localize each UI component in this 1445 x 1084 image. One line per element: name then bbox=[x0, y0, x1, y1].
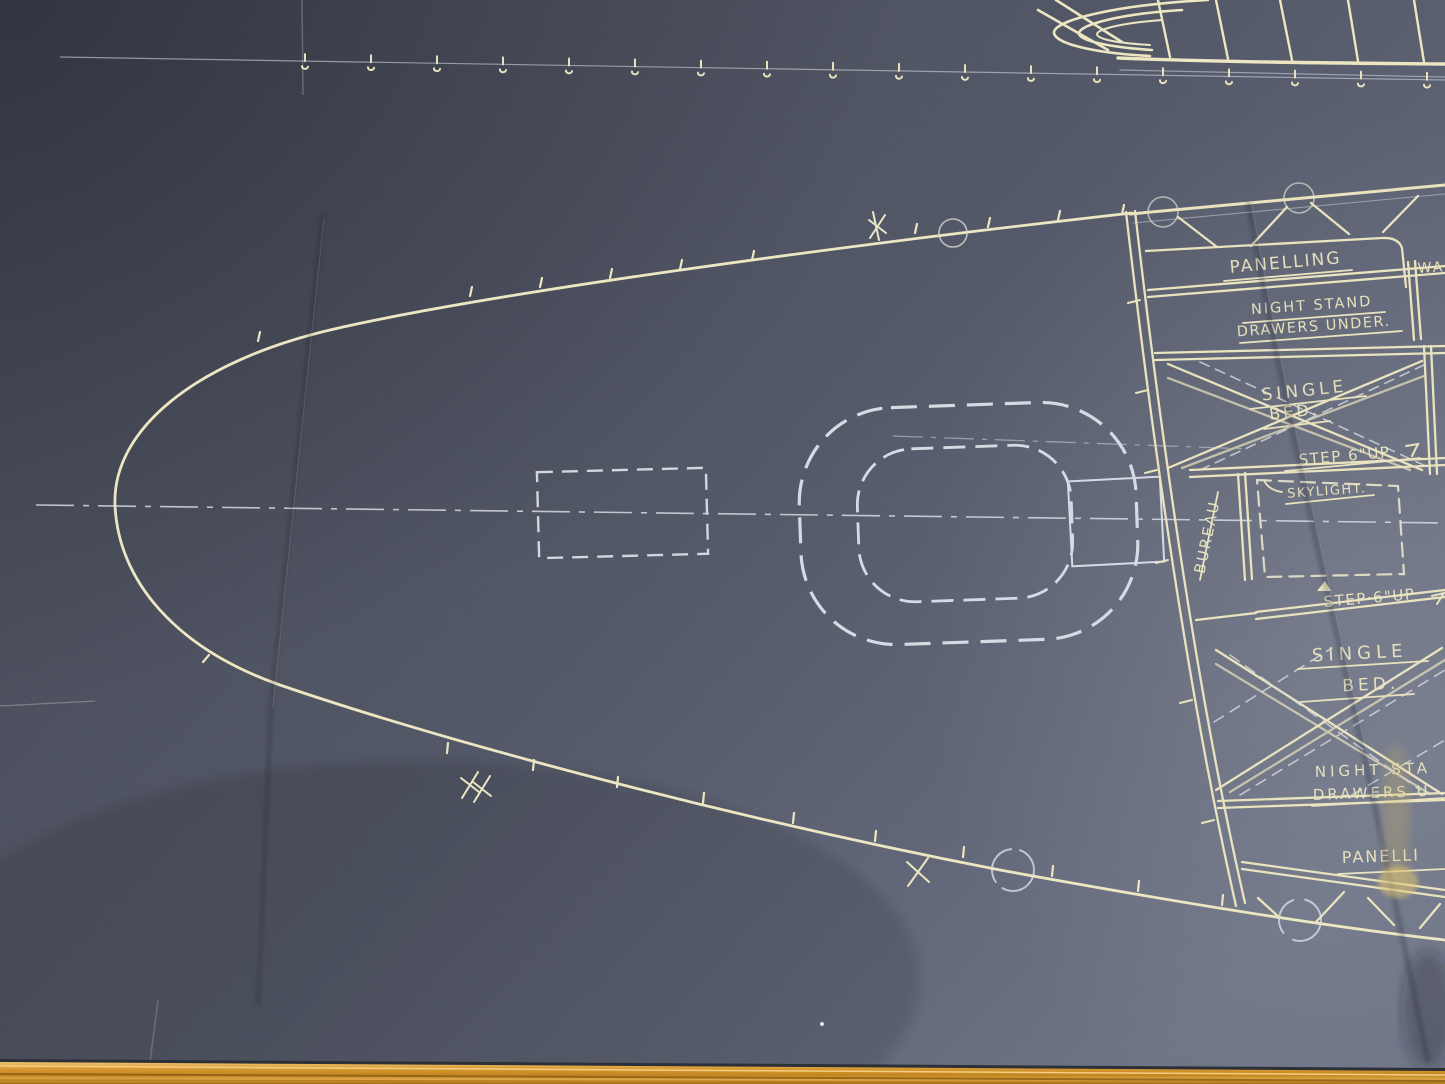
blueprint-photo: PANELLING NIGHT STAND DRAWERS UNDER. WAR… bbox=[0, 0, 1445, 1084]
photo-grain bbox=[0, 0, 1445, 1084]
blueprint-canvas: PANELLING NIGHT STAND DRAWERS UNDER. WAR… bbox=[0, 0, 1445, 1084]
